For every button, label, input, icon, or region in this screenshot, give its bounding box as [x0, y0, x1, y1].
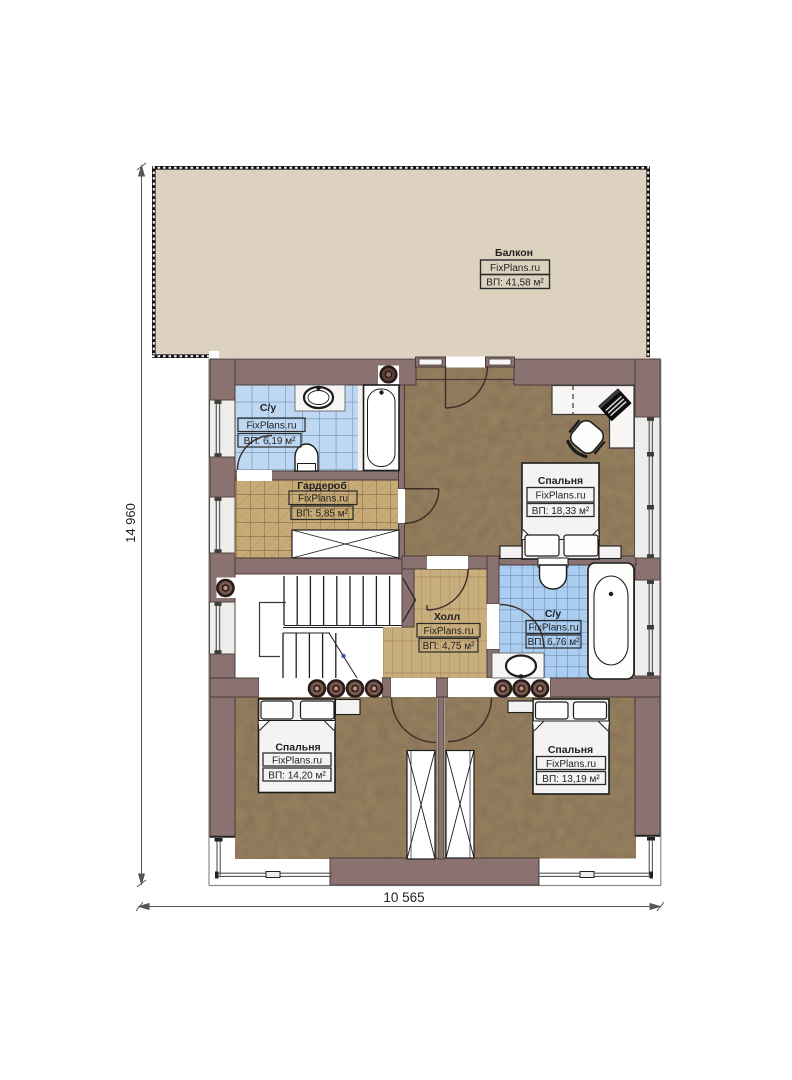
svg-text:С/у: С/у	[260, 402, 277, 414]
svg-text:ВП: 6,76 м²: ВП: 6,76 м²	[528, 637, 581, 648]
svg-text:ВП: 5,85 м²: ВП: 5,85 м²	[296, 509, 349, 520]
svg-text:ВП: 18,33 м²: ВП: 18,33 м²	[532, 506, 590, 517]
svg-text:Спальня: Спальня	[538, 475, 583, 487]
svg-text:ВП: 14,20 м²: ВП: 14,20 м²	[268, 771, 326, 782]
svg-text:С/у: С/у	[545, 608, 562, 620]
svg-text:10 565: 10 565	[383, 890, 424, 905]
svg-text:ВП: 6,19 м²: ВП: 6,19 м²	[244, 436, 297, 447]
svg-text:FixPlans.ru: FixPlans.ru	[423, 626, 473, 637]
svg-text:Спальня: Спальня	[275, 742, 320, 754]
svg-text:ВП: 4,75 м²: ВП: 4,75 м²	[423, 641, 476, 652]
svg-text:Балкон: Балкон	[495, 247, 533, 259]
svg-text:FixPlans.ru: FixPlans.ru	[272, 756, 322, 767]
svg-text:Спальня: Спальня	[548, 744, 593, 756]
svg-text:Гардероб: Гардероб	[297, 480, 347, 492]
svg-text:FixPlans.ru: FixPlans.ru	[490, 263, 540, 274]
svg-text:FixPlans.ru: FixPlans.ru	[535, 491, 585, 502]
svg-text:FixPlans.ru: FixPlans.ru	[246, 421, 296, 432]
svg-text:FixPlans.ru: FixPlans.ru	[546, 759, 596, 770]
svg-text:14 960: 14 960	[123, 503, 138, 543]
svg-text:ВП: 13,19 м²: ВП: 13,19 м²	[542, 774, 600, 785]
svg-text:Холл: Холл	[434, 611, 460, 623]
svg-text:FixPlans.ru: FixPlans.ru	[528, 623, 578, 634]
svg-text:ВП: 41,58 м²: ВП: 41,58 м²	[486, 278, 544, 289]
svg-text:FixPlans.ru: FixPlans.ru	[298, 494, 348, 505]
